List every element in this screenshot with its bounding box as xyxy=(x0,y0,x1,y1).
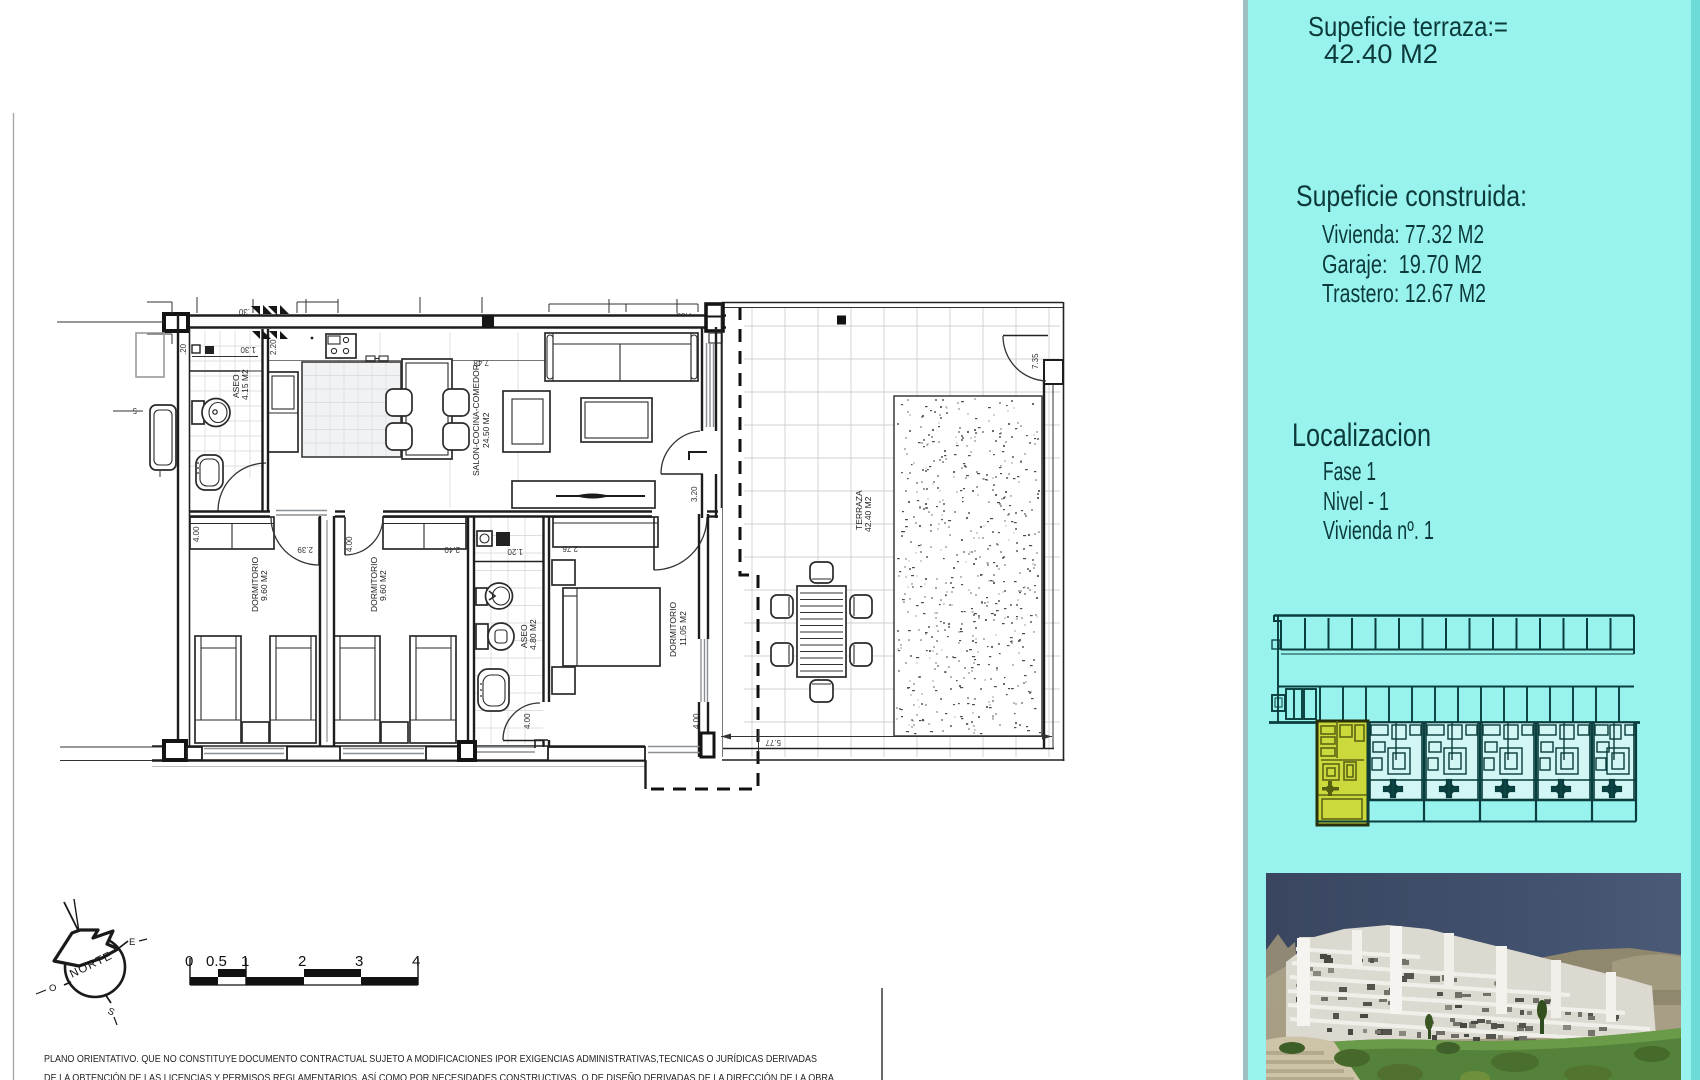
svg-text:24.50 M2: 24.50 M2 xyxy=(481,412,491,448)
svg-text:7.35: 7.35 xyxy=(1031,353,1040,369)
svg-text:9.60 M2: 9.60 M2 xyxy=(378,570,388,601)
svg-text:0: 0 xyxy=(185,953,193,970)
svg-text:.20: .20 xyxy=(179,343,188,355)
svg-text:4.00: 4.00 xyxy=(523,713,532,729)
svg-text:5.77: 5.77 xyxy=(765,738,781,747)
svg-text:Trastero: 12.67 M2: Trastero: 12.67 M2 xyxy=(1322,278,1486,308)
svg-text:Vivienda: 77.32 M2: Vivienda: 77.32 M2 xyxy=(1322,219,1484,249)
svg-text:Vivienda nº. 1: Vivienda nº. 1 xyxy=(1323,515,1434,545)
svg-text:2.20: 2.20 xyxy=(269,339,278,355)
svg-text:0.5: 0.5 xyxy=(206,953,227,970)
svg-text:42.40 M2: 42.40 M2 xyxy=(863,496,873,532)
svg-text:3: 3 xyxy=(355,953,363,970)
svg-text:Garaje: 19.70 M2: Garaje: 19.70 M2 xyxy=(1322,249,1482,279)
svg-text:4.00: 4.00 xyxy=(192,526,201,542)
svg-text:42.40 M2: 42.40 M2 xyxy=(1324,39,1438,69)
svg-text:DE LA OBTENCIÓN DE LAS LICENCI: DE LA OBTENCIÓN DE LAS LICENCIAS Y PERMI… xyxy=(44,1071,834,1080)
svg-text:7.48: 7.48 xyxy=(473,358,489,367)
svg-text:O: O xyxy=(49,983,56,994)
svg-text:4.15 M2: 4.15 M2 xyxy=(240,369,250,400)
svg-text:4.00: 4.00 xyxy=(345,536,354,552)
svg-text:1.30: 1.30 xyxy=(240,345,256,354)
svg-text:1.20: 1.20 xyxy=(507,547,523,556)
svg-text:4.80 M2: 4.80 M2 xyxy=(528,619,538,650)
svg-text:.30: .30 xyxy=(238,307,250,316)
svg-text:Supeficie terraza:=: Supeficie terraza:= xyxy=(1308,11,1508,42)
svg-text:Supeficie construida:: Supeficie construida: xyxy=(1296,180,1527,213)
svg-text:E: E xyxy=(129,937,135,948)
svg-text:2.40: 2.40 xyxy=(444,545,460,554)
svg-text:3.20: 3.20 xyxy=(690,486,699,502)
svg-text:2.76: 2.76 xyxy=(562,544,578,553)
svg-text:PLANO ORIENTATIVO. QUE NO CONS: PLANO ORIENTATIVO. QUE NO CONSTITUYE DOC… xyxy=(44,1052,817,1065)
svg-text:11.05 M2: 11.05 M2 xyxy=(678,611,688,646)
svg-text:Nivel - 1: Nivel - 1 xyxy=(1323,486,1389,516)
svg-text:9.60 M2: 9.60 M2 xyxy=(259,570,269,601)
svg-text:1: 1 xyxy=(241,953,249,970)
svg-text:SALON-COCINA-COMEDOR: SALON-COCINA-COMEDOR xyxy=(471,364,481,476)
svg-text:2: 2 xyxy=(298,953,306,970)
svg-text:2.39: 2.39 xyxy=(297,545,313,554)
svg-text:Localizacion: Localizacion xyxy=(1292,417,1431,453)
svg-text:DORMITORIO: DORMITORIO xyxy=(668,602,678,657)
svg-text:4: 4 xyxy=(412,953,420,970)
svg-text:Fase 1: Fase 1 xyxy=(1323,456,1376,486)
